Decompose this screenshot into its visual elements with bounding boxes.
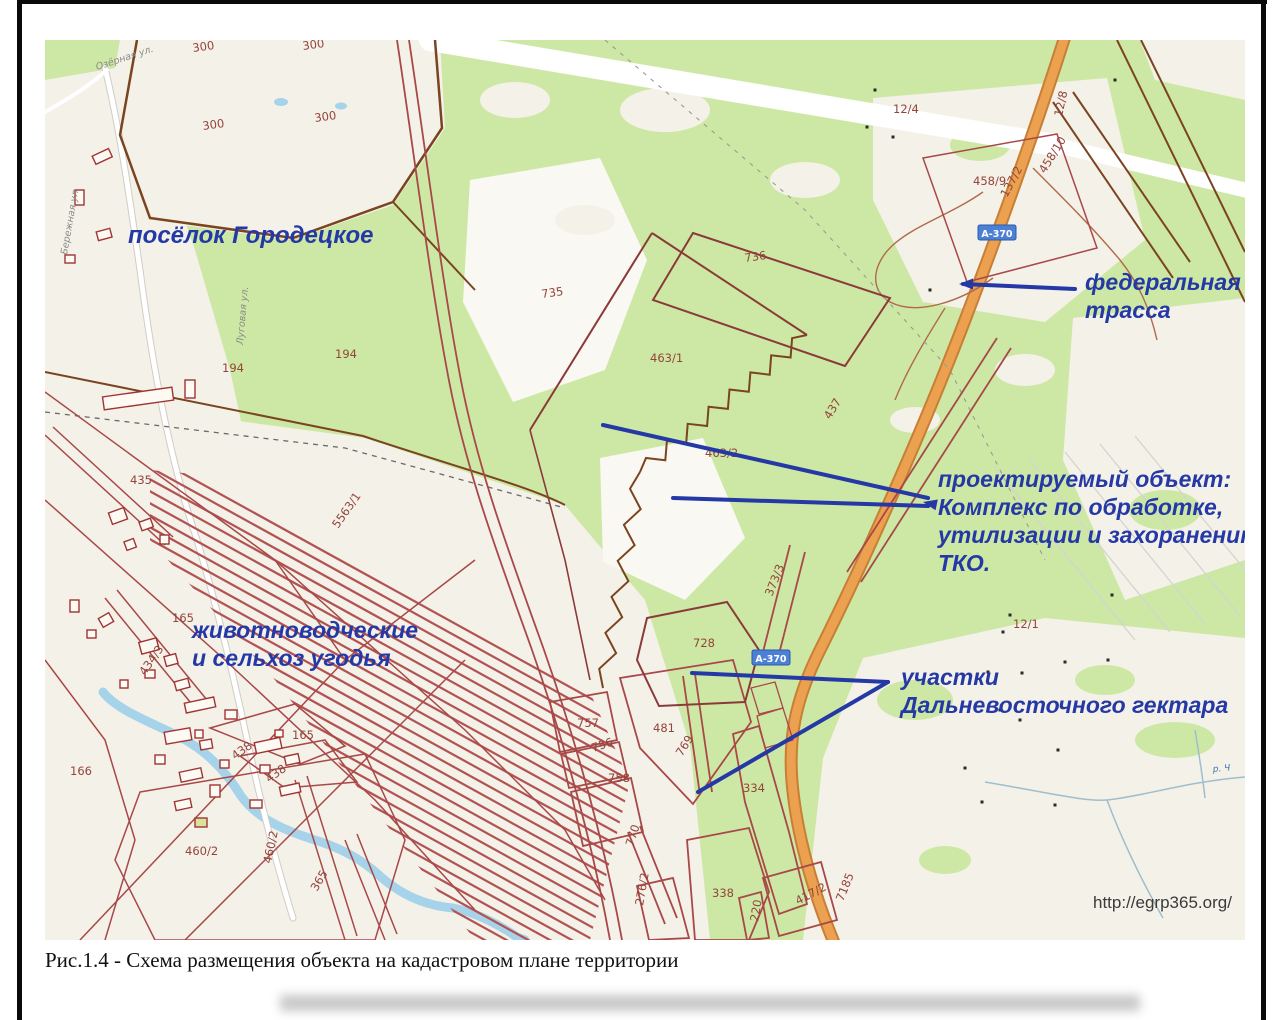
page-border-right: [1261, 0, 1266, 1020]
river-name-label: р. Ч: [1211, 763, 1230, 775]
cadastral-map-figure: А-370А-370 300300300300194194735736463/1…: [45, 40, 1245, 940]
page-border-left: [17, 0, 22, 1020]
parcel-number-label: 757: [577, 716, 599, 730]
parcel-number-label: 166: [70, 764, 92, 778]
survey-dot: [964, 767, 967, 770]
parcel-number-label: 338: [712, 886, 734, 900]
survey-dot: [1054, 804, 1057, 807]
road-shield-label: А-370: [755, 654, 787, 665]
parcel-number-label: 334: [743, 781, 765, 795]
survey-dot: [1021, 672, 1024, 675]
parcel-number-label: 194: [222, 361, 244, 375]
parcel-number-label: 481: [653, 721, 675, 735]
survey-dot: [1114, 79, 1117, 82]
survey-dot: [929, 289, 932, 292]
survey-dot: [874, 89, 877, 92]
document-page: А-370А-370 300300300300194194735736463/1…: [0, 0, 1280, 1020]
parcel-number-label: 194: [335, 347, 357, 361]
parcel-number-label: 165: [292, 728, 314, 742]
survey-dot: [866, 126, 869, 129]
survey-dot: [1009, 614, 1012, 617]
parcel-number-label: 758: [608, 771, 630, 785]
parcel-number-label: 728: [693, 636, 715, 650]
map-annotation-village: посёлок Городецкое: [128, 222, 374, 249]
parcel-number-label: 165: [172, 611, 194, 625]
figure-caption: Рис.1.4 - Схема размещения объекта на ка…: [45, 948, 1145, 973]
parcel-number-label: 435: [130, 473, 152, 487]
survey-dot: [1002, 631, 1005, 634]
page-border-top: [17, 0, 1267, 4]
parcel-number-label: 460/2: [185, 844, 218, 858]
survey-dot: [1019, 719, 1022, 722]
source-url: http://egrp365.org/: [1093, 893, 1232, 913]
parcel-number-label: 12/1: [1013, 617, 1039, 631]
survey-dot: [1057, 749, 1060, 752]
road-shield-label: А-370: [981, 229, 1013, 240]
survey-dot: [892, 136, 895, 139]
parcel-number-label: 463/1: [650, 351, 683, 365]
survey-dot: [1064, 661, 1067, 664]
parcel-number-label: 12/4: [893, 102, 919, 116]
survey-dot: [1107, 659, 1110, 662]
next-figure-edge: [280, 995, 1140, 1011]
cadastral-map: А-370А-370 300300300300194194735736463/1…: [45, 40, 1245, 940]
survey-dot: [981, 801, 984, 804]
survey-dot: [1111, 594, 1114, 597]
